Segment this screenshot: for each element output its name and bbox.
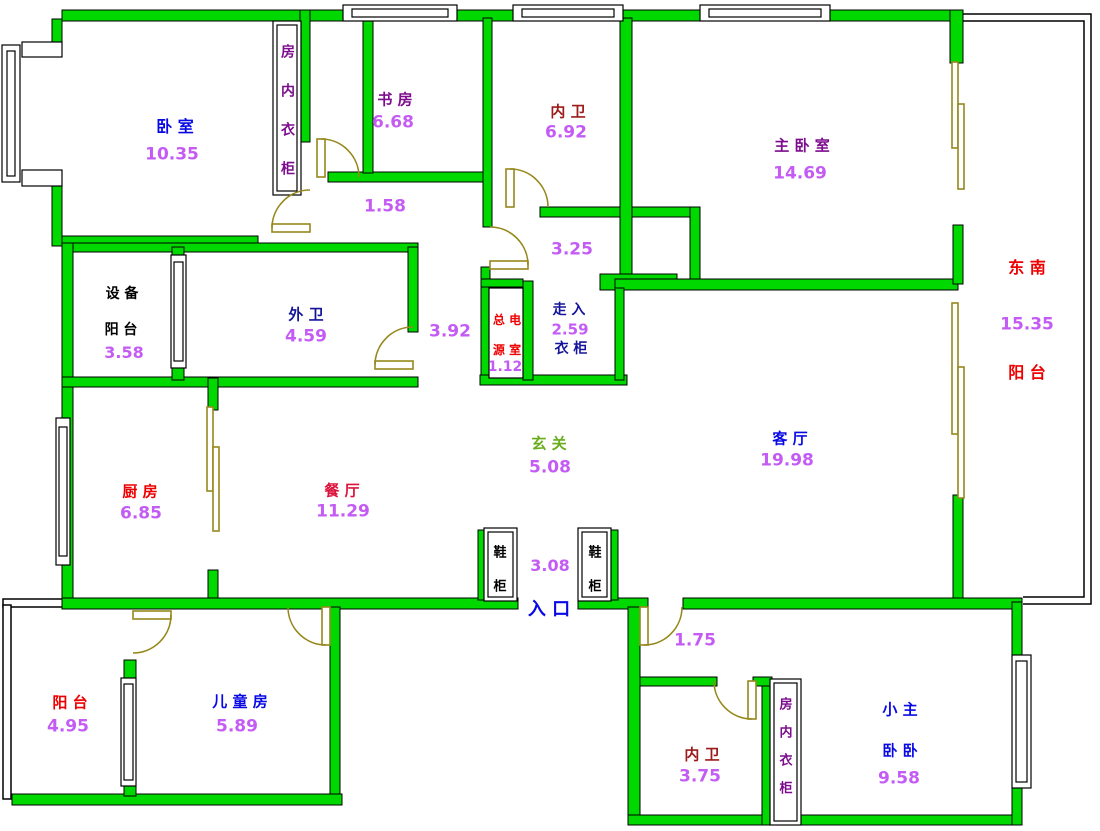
study-area: 6.68 [372, 115, 414, 132]
corridor-3-area: 3.92 [429, 324, 471, 341]
children-room-label: 儿 童 房 [212, 695, 267, 710]
master-bedroom-label: 主 卧 室 [774, 139, 829, 154]
walkin-closet-label-2: 衣 柜 [555, 342, 588, 356]
shoe-cabinet-left-label: 鞋柜 [493, 547, 506, 594]
bedroom-label: 卧 室 [156, 119, 194, 135]
walkin-closet-label-1: 走 入 [553, 303, 586, 317]
entry-hall-area: 5.08 [529, 460, 571, 477]
bl-balcony-label: 阳 台 [52, 696, 87, 711]
power-room-area: 1.12 [488, 360, 523, 374]
living-room-area: 19.98 [760, 453, 814, 470]
se-balcony-label: 阳 台 [1008, 365, 1046, 381]
equip-balcony-area: 3.58 [104, 345, 143, 361]
outer-bath-area: 4.59 [285, 329, 327, 346]
bl-balcony-area: 4.95 [47, 719, 89, 736]
inner-bath-top-label: 内 卫 [550, 105, 585, 120]
inner-bath-bottom-area: 3.75 [679, 769, 721, 786]
shoe-cabinet-right-label: 鞋柜 [588, 547, 601, 594]
kitchen-label: 厨 房 [122, 485, 157, 500]
dining-label: 餐 厅 [324, 484, 359, 499]
outer-bath-label: 外 卫 [288, 308, 323, 323]
equip-balcony-label-2: 阳 台 [105, 323, 138, 337]
children-room-area: 5.89 [216, 719, 258, 736]
southeast-label: 东 南 [1008, 260, 1046, 276]
master-bedroom-area: 14.69 [773, 166, 827, 183]
suite-corridor-area: 1.75 [674, 633, 716, 650]
small-master-area: 9.58 [878, 771, 920, 788]
equip-balcony-label-1: 设 备 [106, 287, 139, 301]
corridor-2-area: 3.25 [551, 242, 593, 259]
corridor-1-area: 1.58 [364, 199, 406, 216]
power-room-label-2: 源 室 [493, 344, 521, 356]
study-label: 书 房 [377, 93, 412, 108]
bedroom-area: 10.35 [145, 147, 199, 164]
bedroom-closet-label: 房内衣柜 [281, 46, 295, 177]
se-balcony-area: 15.35 [1000, 317, 1054, 334]
power-room-label-1: 总 电 [493, 314, 521, 326]
small-master-label-1: 小 主 [882, 703, 917, 718]
inner-bath-bottom-label: 内 卫 [684, 748, 719, 763]
entrance-label: 入 口 [528, 601, 570, 619]
living-room-label: 客 厅 [772, 432, 807, 447]
entry-width-area: 3.08 [530, 558, 569, 574]
doors-layer [133, 62, 964, 719]
dining-area: 11.29 [316, 504, 370, 521]
floor-plan: 卧 室10.35房内衣柜书 房6.68内 卫6.92主 卧 室14.691.58… [0, 0, 1100, 831]
inner-bath-top-area: 6.92 [545, 125, 587, 142]
small-master-label-2: 卧 卧 [882, 744, 917, 759]
kitchen-area: 6.85 [120, 506, 162, 523]
suite-closet-label: 房内衣柜 [779, 699, 792, 796]
entry-hall-label: 玄 关 [531, 437, 566, 452]
walkin-closet-area: 2.59 [551, 323, 588, 338]
